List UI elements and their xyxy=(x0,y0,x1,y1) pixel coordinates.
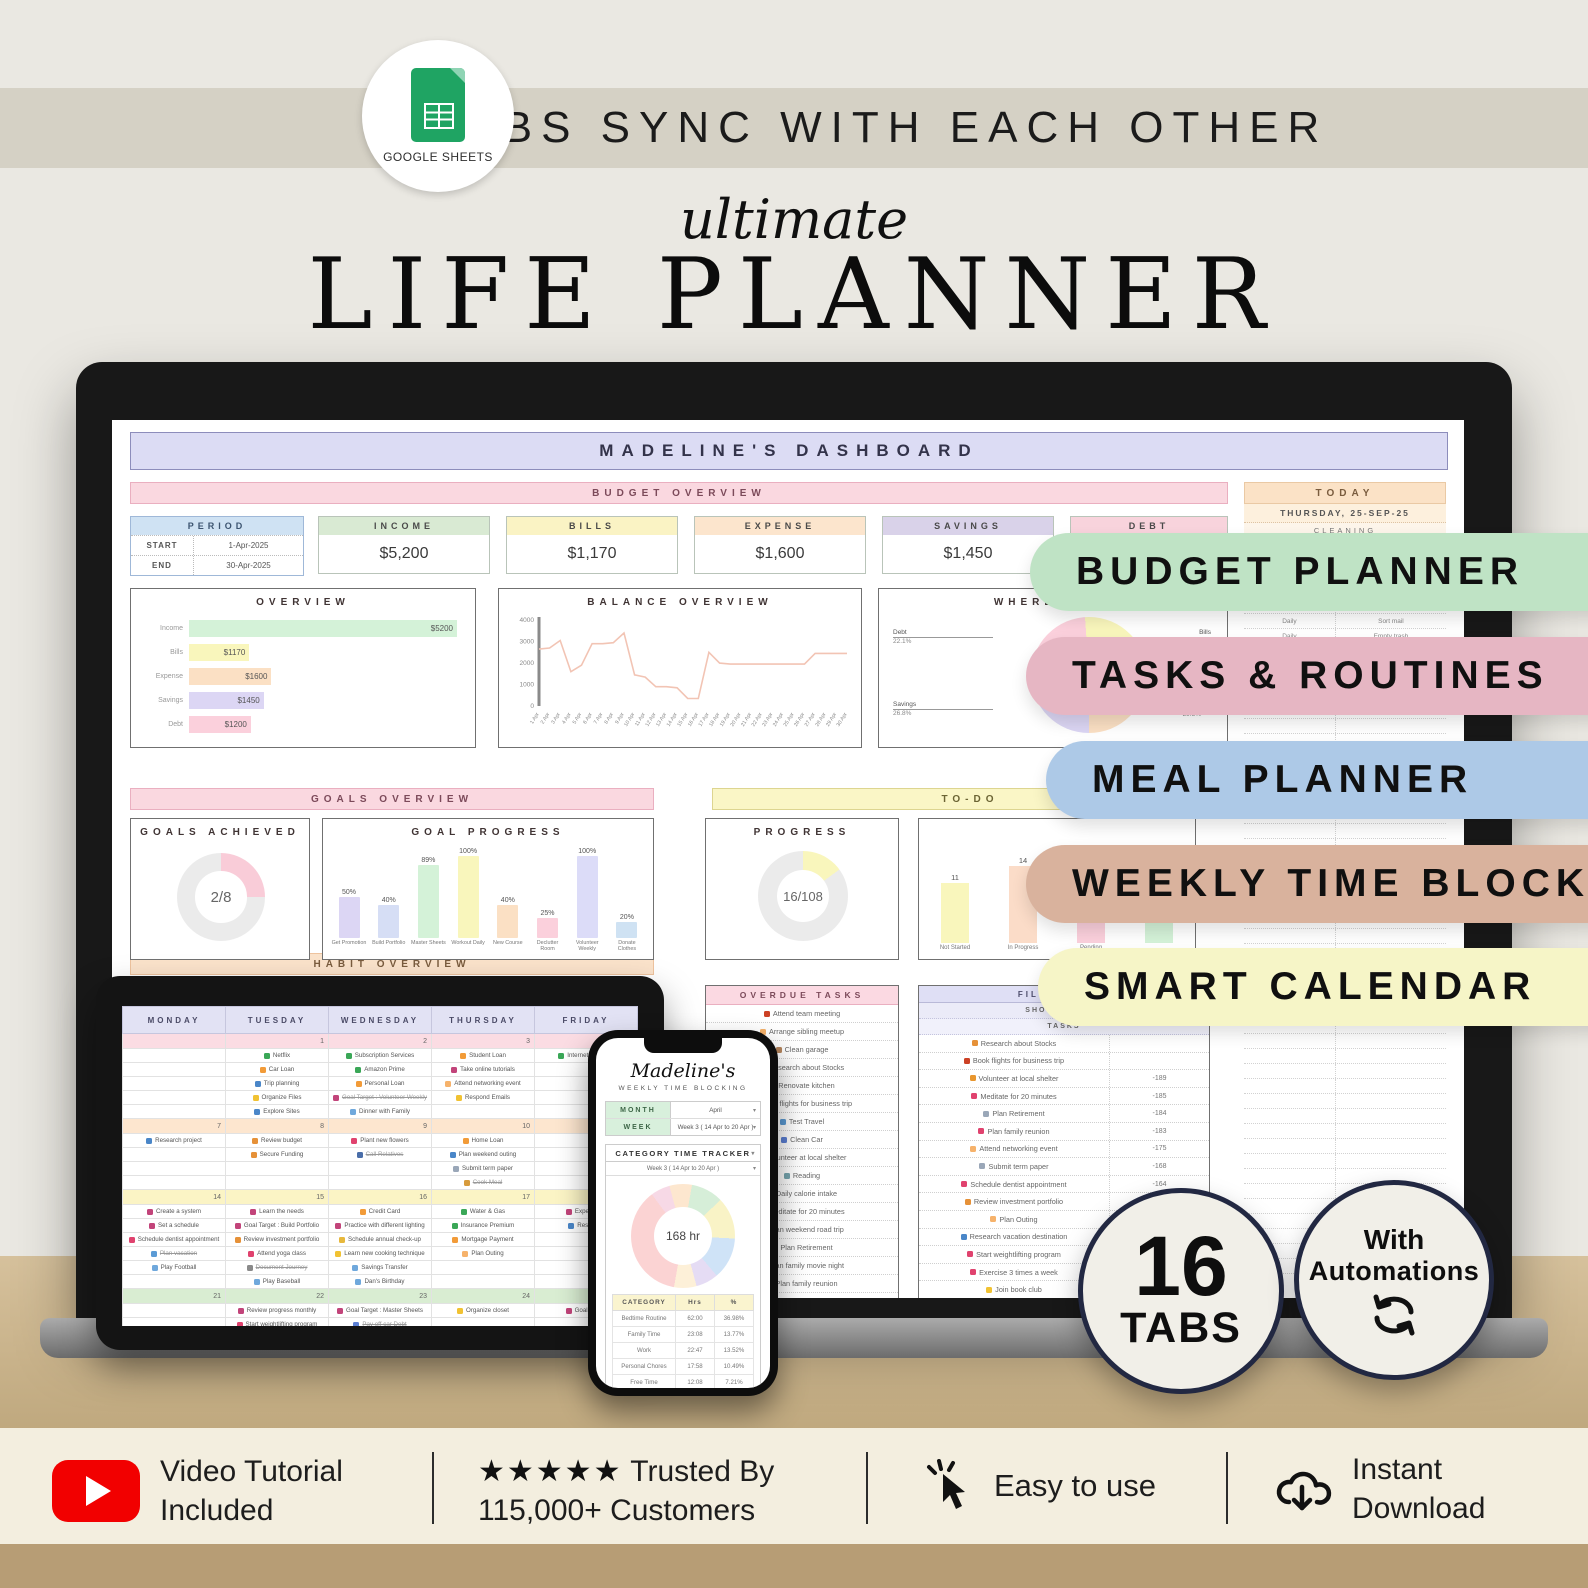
svg-text:3 Apr: 3 Apr xyxy=(550,712,562,726)
calendar-date-cell[interactable]: 8 xyxy=(226,1119,329,1134)
loan-orange-icon xyxy=(356,1081,362,1087)
calendar-task-cell[interactable]: Goal Target : Build Portfolio xyxy=(226,1219,329,1233)
period-header: PERIOD xyxy=(131,517,303,535)
google-sheets-icon xyxy=(411,68,465,142)
calendar-task-cell[interactable]: Student Loan xyxy=(432,1049,535,1063)
donut-callout-savings: Savings26.8% xyxy=(893,701,993,717)
calendar-task-cell[interactable] xyxy=(329,1162,432,1176)
calendar-task-cell[interactable]: Insurance Premium xyxy=(432,1219,535,1233)
calendar-date-cell[interactable]: 17 xyxy=(432,1190,535,1205)
calendar-task-cell[interactable] xyxy=(123,1176,226,1190)
calendar-date-cell[interactable]: 1 xyxy=(226,1034,329,1049)
calendar-task-cell[interactable]: Pay off car Debt xyxy=(329,1318,432,1327)
tabs-number: 16 xyxy=(1134,1229,1227,1305)
loan-orange-icon xyxy=(360,1209,366,1215)
heart-icon xyxy=(351,1138,357,1144)
book-orange-icon xyxy=(972,1040,978,1046)
balance-chart-panel: BALANCE OVERVIEW 400030002000100001 Apr2… xyxy=(498,588,862,748)
calendar-icon xyxy=(350,1109,356,1115)
target-pink-icon xyxy=(566,1308,572,1314)
shield-icon xyxy=(970,1075,976,1081)
pan-icon xyxy=(464,1180,470,1186)
calendar-day-header: THURSDAY xyxy=(432,1007,535,1034)
calendar-task-cell[interactable]: Learn the needs xyxy=(226,1205,329,1219)
todo-progress-panel: PROGRESS 16/108 xyxy=(705,818,899,960)
overdue-task-row[interactable]: Attend team meeting xyxy=(706,1005,898,1023)
book-blue-icon xyxy=(961,1234,967,1240)
period-end-label: END xyxy=(131,556,194,575)
feature-download: InstantDownload xyxy=(1272,1450,1485,1528)
calendar-task-cell[interactable]: Start weightlifting program xyxy=(226,1318,329,1327)
heart-icon xyxy=(978,1128,984,1134)
calendar-screen: MONDAYTUESDAYWEDNESDAYTHURSDAYFRIDAY1234… xyxy=(122,1006,638,1326)
kpi-card-savings: SAVINGS$1,450 xyxy=(882,516,1054,574)
calendar-task-cell[interactable]: Secure Funding xyxy=(226,1148,329,1162)
category-table-header: Hrs xyxy=(676,1295,715,1311)
tablet-mockup: MONDAYTUESDAYWEDNESDAYTHURSDAYFRIDAY1234… xyxy=(96,976,664,1350)
book-orange-icon xyxy=(251,1152,257,1158)
book-blue-icon xyxy=(568,1223,574,1229)
category-time-tracker: CATEGORY TIME TRACKER Week 3 ( 14 Apr to… xyxy=(605,1144,761,1388)
calendar-task-cell[interactable]: Review investment portfolio xyxy=(226,1233,329,1247)
calendar-task-cell[interactable]: Plant new flowers xyxy=(329,1134,432,1148)
calendar-icon xyxy=(352,1265,358,1271)
book-orange-icon xyxy=(235,1237,241,1243)
dashboard-title: MADELINE'S DASHBOARD xyxy=(130,432,1448,470)
calendar-icon xyxy=(254,1279,260,1285)
phone-owner-name: Madeline's xyxy=(596,1060,770,1082)
calendar-date-cell[interactable]: 10 xyxy=(432,1119,535,1134)
calendar-task-cell[interactable] xyxy=(226,1162,329,1176)
doc-icon xyxy=(979,1163,985,1169)
overview-bar-bills: Bills$1170 xyxy=(137,643,469,661)
heart-icon xyxy=(970,1269,976,1275)
goal-bar: 25%Declutter Room xyxy=(530,843,566,955)
calendar-task-cell[interactable]: Plan weekend outing xyxy=(432,1148,535,1162)
svg-text:8 Apr: 8 Apr xyxy=(603,712,615,726)
calendar-task-cell[interactable] xyxy=(432,1318,535,1327)
calendar-task-cell[interactable]: Play Football xyxy=(123,1261,226,1275)
goal-bar: 100%Workout Daily xyxy=(450,843,486,955)
overview-bar-chart: Income$5200Bills$1170Expense$1600Savings… xyxy=(137,619,469,739)
people-icon xyxy=(990,1216,996,1222)
calendar-task-cell[interactable]: Personal Loan xyxy=(329,1077,432,1091)
filter-task-row[interactable]: Plan family reunion-183 xyxy=(919,1123,1209,1141)
feature-easy: Easy to use xyxy=(920,1458,1156,1514)
calendar-task-cell[interactable]: Review progress monthly xyxy=(226,1304,329,1318)
calendar-task-cell[interactable]: Savings Transfer xyxy=(329,1261,432,1275)
svg-text:4000: 4000 xyxy=(520,617,535,624)
category-table-row: Personal Chores17:5810.49% xyxy=(613,1359,754,1375)
balance-line-chart: 400030002000100001 Apr2 Apr3 Apr4 Apr5 A… xyxy=(499,613,859,750)
category-table-header: % xyxy=(715,1295,754,1311)
people-icon xyxy=(462,1251,468,1257)
today-row[interactable] xyxy=(1244,1064,1446,1079)
today-title: TODAY xyxy=(1244,482,1446,504)
time-tracker-donut: 168 hr xyxy=(631,1184,735,1288)
youtube-icon xyxy=(52,1460,140,1522)
sheet-green-icon xyxy=(264,1053,270,1059)
today-row[interactable] xyxy=(1244,824,1446,839)
car-icon xyxy=(353,1322,359,1327)
calendar-task-cell[interactable]: Home Loan xyxy=(432,1134,535,1148)
goal-bar: 100%Volunteer Weekly xyxy=(569,843,605,955)
filter-task-row[interactable]: Submit term paper-168 xyxy=(919,1158,1209,1176)
target-pink-icon xyxy=(566,1209,572,1215)
doc-icon xyxy=(983,1111,989,1117)
calendar-task-cell[interactable] xyxy=(432,1261,535,1275)
calendar-date-cell[interactable]: 9 xyxy=(329,1119,432,1134)
feature-video: Video TutorialIncluded xyxy=(52,1452,343,1530)
loan-orange-icon xyxy=(260,1067,266,1073)
calendar-task-cell[interactable]: Mortgage Payment xyxy=(432,1233,535,1247)
calendar-date-cell[interactable]: 7 xyxy=(123,1119,226,1134)
calendar-task-cell[interactable] xyxy=(329,1176,432,1190)
calendar-date-cell[interactable]: 16 xyxy=(329,1190,432,1205)
donut-callout-debt: Debt22.1% xyxy=(893,629,993,645)
calendar-task-cell[interactable]: Schedule annual check-up xyxy=(329,1233,432,1247)
budget-overview-header: BUDGET OVERVIEW xyxy=(130,482,1228,504)
calendar-icon xyxy=(152,1265,158,1271)
bottom-strip xyxy=(0,1544,1588,1588)
calendar-day-header: MONDAY xyxy=(123,1007,226,1034)
book-orange-icon xyxy=(965,1199,971,1205)
category-table-row: Bedtime Routine62:0036.98% xyxy=(613,1311,754,1327)
note-yellow-icon xyxy=(986,1287,992,1293)
calendar-task-cell[interactable]: Document Journey xyxy=(226,1261,329,1275)
calendar-task-cell[interactable]: Research project xyxy=(123,1134,226,1148)
book-blue-icon xyxy=(146,1138,152,1144)
today-row[interactable] xyxy=(1244,1109,1446,1124)
goal-bar: 40%New Course xyxy=(490,843,526,955)
plane-icon xyxy=(151,1251,157,1257)
calendar-task-cell[interactable] xyxy=(123,1148,226,1162)
phone-subtitle: WEEKLY TIME BLOCKING xyxy=(596,1085,770,1092)
calendar-day-header: TUESDAY xyxy=(226,1007,329,1034)
calendar-task-cell[interactable]: Attend networking event xyxy=(432,1077,535,1091)
feature-pill-tasks-routines: TASKS & ROUTINES xyxy=(1026,637,1588,715)
week-label: WEEK xyxy=(606,1119,671,1135)
tabs-count-badge: 16 TABS xyxy=(1078,1188,1284,1394)
category-table-row: Free Time12:087.21% xyxy=(613,1375,754,1389)
today-row[interactable] xyxy=(1244,1034,1446,1049)
calendar-date-cell[interactable]: 23 xyxy=(329,1289,432,1304)
goals-achieved-title: GOALS ACHIEVED xyxy=(131,827,309,838)
note-yellow-icon xyxy=(457,1308,463,1314)
calendar-task-cell[interactable]: Organize closet xyxy=(432,1304,535,1318)
target-pink-icon xyxy=(235,1223,241,1229)
phone-mockup: Madeline's WEEKLY TIME BLOCKING MONTHApr… xyxy=(588,1030,778,1396)
category-table-header: CATEGORY xyxy=(613,1295,676,1311)
kpi-card-bills: BILLS$1,170 xyxy=(506,516,678,574)
calendar-task-cell[interactable]: Amazon Prime xyxy=(329,1063,432,1077)
calendar-task-cell[interactable]: Trip planning xyxy=(226,1077,329,1091)
overview-title: OVERVIEW xyxy=(131,597,475,608)
car-icon xyxy=(781,1137,787,1143)
calendar-task-cell[interactable] xyxy=(123,1063,226,1077)
filter-task-row[interactable]: Plan Retirement-184 xyxy=(919,1105,1209,1123)
book-orange-icon xyxy=(252,1138,258,1144)
book-blue-icon xyxy=(450,1152,456,1158)
svg-text:7 Apr: 7 Apr xyxy=(593,712,605,726)
loan-orange-icon xyxy=(452,1237,458,1243)
category-table-row: Work22:4713.52% xyxy=(613,1343,754,1359)
today-row[interactable]: DailySort mail xyxy=(1244,614,1446,629)
period-start-label: START xyxy=(131,536,194,555)
calendar-task-cell[interactable]: Water & Gas xyxy=(432,1205,535,1219)
calendar-task-cell[interactable]: Plan vacation xyxy=(123,1247,226,1261)
overview-chart-panel: OVERVIEW Income$5200Bills$1170Expense$16… xyxy=(130,588,476,748)
calendar-task-cell[interactable]: Credit Card xyxy=(329,1205,432,1219)
people-icon xyxy=(970,1146,976,1152)
download-icon xyxy=(1272,1460,1332,1518)
goal-progress-title: GOAL PROGRESS xyxy=(323,827,653,838)
calendar-task-cell[interactable]: Review budget xyxy=(226,1134,329,1148)
calendar-task-cell[interactable]: Attend yoga class xyxy=(226,1247,329,1261)
note-yellow-icon xyxy=(335,1251,341,1257)
calendar-task-cell[interactable] xyxy=(123,1318,226,1327)
today-row[interactable] xyxy=(1244,1154,1446,1169)
target-pink-icon xyxy=(149,1223,155,1229)
calendar-task-cell[interactable]: Respond Emails xyxy=(432,1091,535,1105)
top-banner: TABS SYNC WITH EACH OTHER xyxy=(0,88,1588,168)
svg-text:3000: 3000 xyxy=(520,639,535,646)
people-icon xyxy=(445,1081,451,1087)
loan-orange-icon xyxy=(463,1138,469,1144)
calendar-task-cell[interactable]: Set a schedule xyxy=(123,1219,226,1233)
heart-icon xyxy=(248,1251,254,1257)
calendar-task-cell[interactable]: Dinner with Family xyxy=(329,1105,432,1119)
target-pink-icon xyxy=(333,1095,339,1101)
click-icon xyxy=(920,1458,974,1514)
calendar-date-cell[interactable]: 3 xyxy=(432,1034,535,1049)
month-select[interactable]: April xyxy=(671,1102,760,1118)
tracker-week-dropdown[interactable]: Week 3 ( 14 Apr to 20 Apr ) xyxy=(606,1162,760,1176)
google-sheets-label: GOOGLE SHEETS xyxy=(383,150,493,164)
heart-icon xyxy=(237,1322,243,1327)
goals-overview-header: GOALS OVERVIEW xyxy=(130,788,654,810)
doc-icon xyxy=(453,1166,459,1172)
calendar-task-cell[interactable]: Cook Meal xyxy=(432,1176,535,1190)
today-row[interactable] xyxy=(1244,1094,1446,1109)
month-label: MONTH xyxy=(606,1102,671,1118)
calendar-task-cell[interactable] xyxy=(432,1275,535,1289)
calendar-task-cell[interactable]: Create a system xyxy=(123,1205,226,1219)
life-planner-listing-image: TABS SYNC WITH EACH OTHER GOOGLE SHEETS … xyxy=(0,0,1588,1588)
kpi-card-expense: EXPENSE$1,600 xyxy=(694,516,866,574)
calendar-task-cell[interactable]: Practice with different lighting xyxy=(329,1219,432,1233)
calendar-task-cell[interactable] xyxy=(123,1091,226,1105)
sheet-green-icon xyxy=(355,1067,361,1073)
calendar-task-cell[interactable]: Subscription Services xyxy=(329,1049,432,1063)
goal-bar: 40%Build Portfolio xyxy=(371,843,407,955)
overview-bar-income: Income$5200 xyxy=(137,619,469,637)
page-title: LIFE PLANNER xyxy=(307,238,1280,352)
sync-icon xyxy=(1368,1293,1420,1337)
target-pink-icon xyxy=(337,1308,343,1314)
filter-task-row[interactable]: Book flights for business trip xyxy=(919,1053,1209,1071)
feature-pill-budget-planner: BUDGET PLANNER xyxy=(1030,533,1588,611)
book-blue-icon xyxy=(255,1081,261,1087)
heart-icon xyxy=(967,1251,973,1257)
calendar-task-cell[interactable]: Take online tutorials xyxy=(432,1063,535,1077)
tabs-label: TABS xyxy=(1120,1304,1242,1353)
todo-progress-title: PROGRESS xyxy=(706,827,898,838)
goal-bar: 20%Donate Clothes xyxy=(609,843,645,955)
calendar-icon xyxy=(355,1279,361,1285)
target-pink-icon xyxy=(335,1223,341,1229)
status-bar-not-started: 11Not Started xyxy=(933,833,977,955)
feature-pill-weekly-time-block: WEEKLY TIME BLOCK xyxy=(1026,845,1588,923)
sheet-green-icon xyxy=(452,1223,458,1229)
feature-pill-smart-calendar: SMART CALENDAR xyxy=(1038,948,1588,1026)
calendar-task-cell[interactable] xyxy=(226,1176,329,1190)
calendar-task-cell[interactable] xyxy=(123,1049,226,1063)
target-pink-icon xyxy=(238,1308,244,1314)
calendar-task-cell[interactable]: Schedule dentist appointment xyxy=(123,1233,226,1247)
calendar-task-cell[interactable]: Plan Outing xyxy=(432,1247,535,1261)
calendar-task-cell[interactable]: Call Relatives xyxy=(329,1148,432,1162)
today-row[interactable] xyxy=(1244,1049,1446,1064)
calendar-date-cell[interactable]: 2 xyxy=(329,1034,432,1049)
heart-icon xyxy=(129,1237,135,1243)
calendar-task-cell[interactable]: Netflix xyxy=(226,1049,329,1063)
calendar-date-cell[interactable]: 24 xyxy=(432,1289,535,1304)
reading-icon xyxy=(784,1173,790,1179)
kpi-card-income: INCOME$5,200 xyxy=(318,516,490,574)
goal-bar: 89%Master Sheets xyxy=(410,843,446,955)
goals-achieved-donut: 2/8 xyxy=(177,853,265,941)
calendar-date-cell[interactable]: 22 xyxy=(226,1289,329,1304)
divider xyxy=(432,1452,434,1524)
goals-achieved-panel: GOALS ACHIEVED 2/8 xyxy=(130,818,310,960)
calendar-task-cell[interactable]: Dan's Birthday xyxy=(329,1275,432,1289)
overview-bar-savings: Savings$1450 xyxy=(137,691,469,709)
svg-text:2 Apr: 2 Apr xyxy=(540,712,552,726)
overview-bar-debt: Debt$1200 xyxy=(137,715,469,733)
book-red-icon xyxy=(764,1011,770,1017)
filter-task-row[interactable]: Volunteer at local shelter-189 xyxy=(919,1070,1209,1088)
svg-text:30 Apr: 30 Apr xyxy=(836,712,849,728)
note-yellow-icon xyxy=(456,1095,462,1101)
divider xyxy=(866,1452,868,1524)
calendar-day-header: WEDNESDAY xyxy=(329,1007,432,1034)
today-row[interactable] xyxy=(1244,1124,1446,1139)
calendar-task-cell[interactable] xyxy=(123,1275,226,1289)
phone-icon xyxy=(357,1152,363,1158)
calendar-task-cell[interactable]: Organize Files xyxy=(226,1091,329,1105)
calendar-date-cell[interactable]: 14 xyxy=(123,1190,226,1205)
heart-icon xyxy=(971,1093,977,1099)
google-sheets-logo: GOOGLE SHEETS xyxy=(362,40,514,192)
calendar-date-cell[interactable]: 15 xyxy=(226,1190,329,1205)
today-row[interactable] xyxy=(1244,929,1446,944)
todo-progress-donut: 16/108 xyxy=(758,851,848,941)
filter-task-row[interactable]: Meditate for 20 minutes-185 xyxy=(919,1088,1209,1106)
today-date: THURSDAY, 25-SEP-25 xyxy=(1244,504,1446,523)
tracker-title-dropdown[interactable]: CATEGORY TIME TRACKER xyxy=(606,1145,760,1162)
svg-text:0: 0 xyxy=(530,703,534,710)
note-yellow-icon xyxy=(253,1095,259,1101)
target-pink-icon xyxy=(147,1209,153,1215)
calendar-task-cell[interactable]: Submit term paper xyxy=(432,1162,535,1176)
calendar-task-cell[interactable] xyxy=(123,1105,226,1119)
plane-icon xyxy=(780,1119,786,1125)
calendar-task-cell[interactable] xyxy=(123,1162,226,1176)
svg-text:1 Apr: 1 Apr xyxy=(529,712,541,726)
heart-yellow-icon xyxy=(339,1237,345,1243)
period-start-value[interactable]: 1-Apr-2025 xyxy=(194,536,303,555)
calendar-task-cell[interactable] xyxy=(123,1304,226,1318)
sheet-green-icon xyxy=(461,1209,467,1215)
overdue-tasks-title: OVERDUE TASKS xyxy=(706,986,898,1005)
target-pink-icon xyxy=(451,1067,457,1073)
today-row[interactable] xyxy=(1244,719,1446,734)
calendar-task-cell[interactable]: Play Baseball xyxy=(226,1275,329,1289)
calendar-task-cell[interactable]: Explore Sites xyxy=(226,1105,329,1119)
calendar-task-cell[interactable]: Goal Target : Master Sheets xyxy=(329,1304,432,1318)
feature-trusted: ★★★★★ Trusted By115,000+ Customers xyxy=(478,1452,774,1530)
calendar-date-cell[interactable] xyxy=(123,1034,226,1049)
feature-pill-meal-planner: MEAL PLANNER xyxy=(1046,741,1588,819)
heart-icon xyxy=(961,1181,967,1187)
calendar-task-cell[interactable]: Learn new cooking technique xyxy=(329,1247,432,1261)
phone-screen: Madeline's WEEKLY TIME BLOCKING MONTHApr… xyxy=(596,1038,770,1388)
today-row[interactable] xyxy=(1244,1139,1446,1154)
book-red-icon xyxy=(964,1058,970,1064)
target-pink-icon xyxy=(250,1209,256,1215)
divider xyxy=(1226,1452,1228,1524)
month-week-selectors: MONTHApril WEEKWeek 3 ( 14 Apr to 20 Apr… xyxy=(605,1101,761,1136)
phone-notch xyxy=(644,1038,722,1053)
balance-title: BALANCE OVERVIEW xyxy=(499,597,861,608)
loan-orange-icon xyxy=(460,1053,466,1059)
svg-text:2000: 2000 xyxy=(520,660,535,667)
calendar-date-cell[interactable]: 21 xyxy=(123,1289,226,1304)
svg-text:4 Apr: 4 Apr xyxy=(561,712,573,726)
goal-bar: 50%Get Promotion xyxy=(331,843,367,955)
goal-progress-bar-chart: 50%Get Promotion40%Build Portfolio89%Mas… xyxy=(331,843,645,955)
filter-task-row[interactable]: Research about Stocks xyxy=(919,1035,1209,1053)
star-rating-icon: ★★★★★ xyxy=(478,1454,622,1489)
goal-progress-panel: GOAL PROGRESS 50%Get Promotion40%Build P… xyxy=(322,818,654,960)
automations-badge: With Automations xyxy=(1294,1180,1494,1380)
filter-task-row[interactable]: Attend networking event-175 xyxy=(919,1141,1209,1159)
category-table: CATEGORYHrs%Bedtime Routine62:0036.98%Fa… xyxy=(612,1294,754,1388)
monthly-calendar: MONDAYTUESDAYWEDNESDAYTHURSDAYFRIDAY1234… xyxy=(122,1006,638,1326)
week-select[interactable]: Week 3 ( 14 Apr to 20 Apr ) xyxy=(671,1119,760,1135)
book-blue-icon xyxy=(254,1109,260,1115)
category-table-row: Family Time23:0813.77% xyxy=(613,1327,754,1343)
calendar-task-cell[interactable]: Car Loan xyxy=(226,1063,329,1077)
calendar-task-cell[interactable] xyxy=(123,1077,226,1091)
period-card: PERIOD START1-Apr-2025 END30-Apr-2025 xyxy=(130,516,304,576)
calendar-task-cell[interactable] xyxy=(432,1105,535,1119)
svg-text:1000: 1000 xyxy=(520,682,535,689)
svg-text:5 Apr: 5 Apr xyxy=(572,712,584,726)
banner-text: TABS SYNC WITH EACH OTHER xyxy=(432,103,1328,153)
sheet-green-icon xyxy=(346,1053,352,1059)
sheet-green-icon xyxy=(558,1053,564,1059)
calendar-task-cell[interactable]: Goal Target : Volunteer Weekly xyxy=(329,1091,432,1105)
overview-bar-expense: Expense$1600 xyxy=(137,667,469,685)
period-end-value[interactable]: 30-Apr-2025 xyxy=(194,556,303,575)
camera-icon xyxy=(247,1265,253,1271)
svg-text:6 Apr: 6 Apr xyxy=(582,712,594,726)
today-row[interactable] xyxy=(1244,1079,1446,1094)
